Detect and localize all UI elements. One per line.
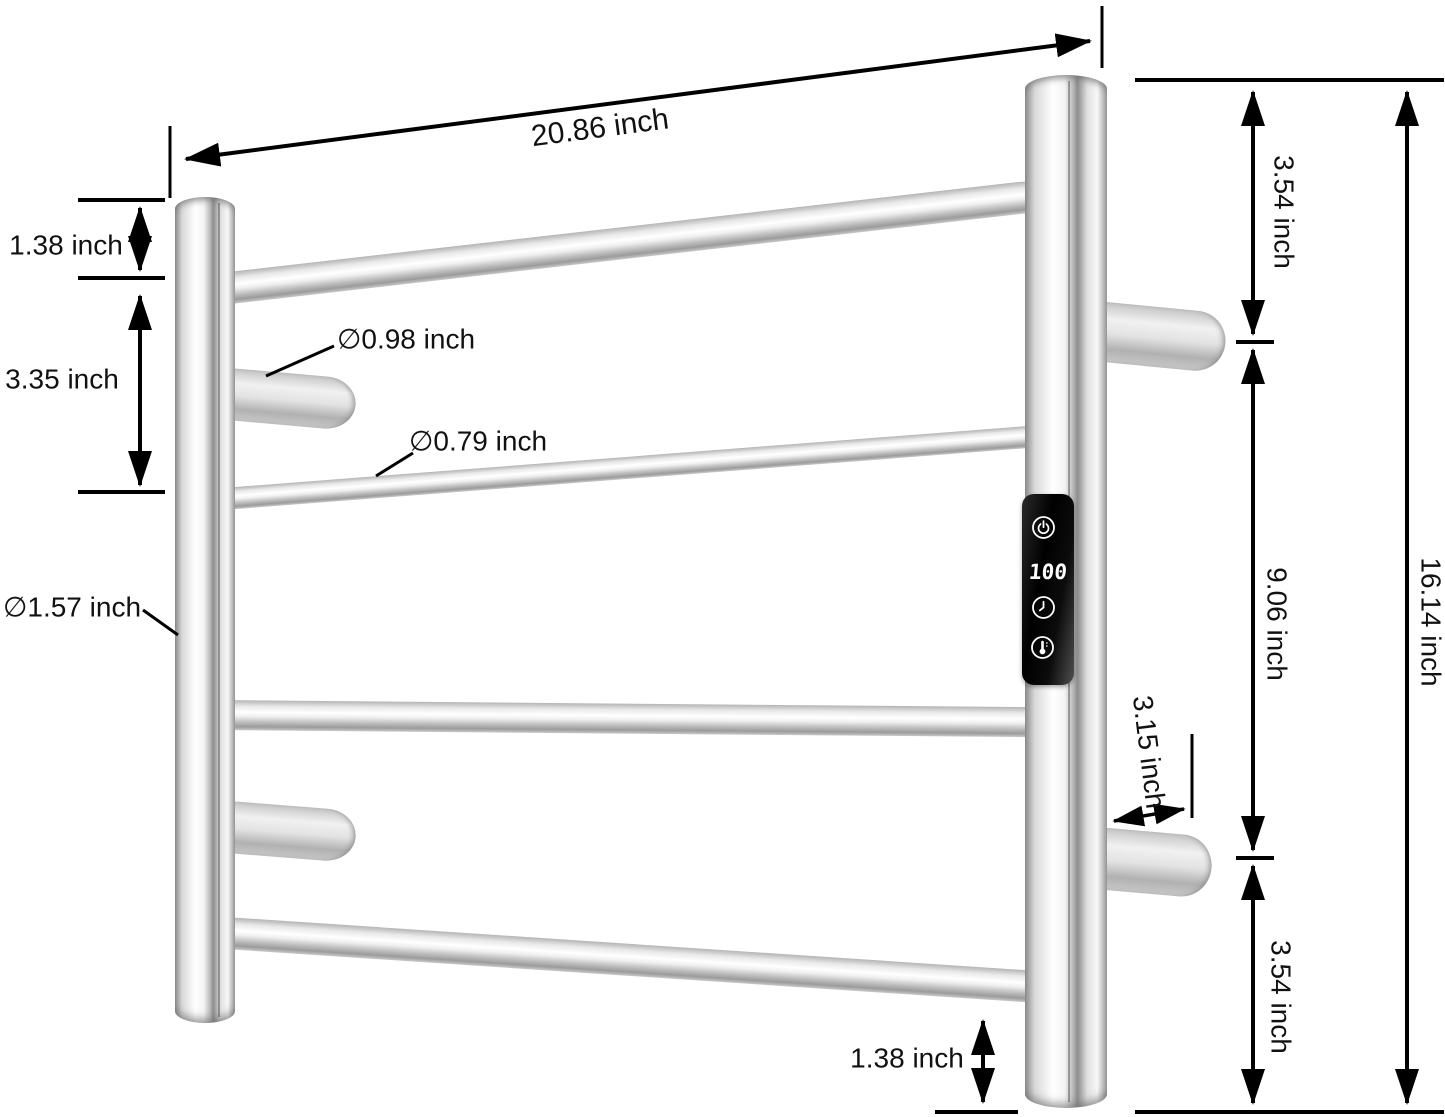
dim-label-left-spacing: 3.35 inch <box>5 364 119 393</box>
power-icon <box>1030 514 1057 541</box>
leader-bar-diameter <box>376 453 413 476</box>
dim-label-left-offset: 1.38 inch <box>9 230 123 259</box>
towel-bar-top <box>210 180 1040 306</box>
towel-bar-third <box>210 700 1042 737</box>
towel-bar-bottom <box>209 916 1041 1003</box>
leader-rail-diameter <box>143 610 178 635</box>
mount-peg-left-lower <box>226 801 358 863</box>
dim-label-right-middle: 9.06 inch <box>1262 567 1291 681</box>
dim-line-bracket <box>1114 809 1184 821</box>
dim-label-top-width: 20.86 inch <box>529 103 670 152</box>
left-rail-seam <box>218 203 220 1017</box>
dim-label-rail-diameter: ∅1.57 inch <box>3 592 141 621</box>
dim-line-top-width <box>186 41 1090 159</box>
temperature-icon <box>1029 634 1056 661</box>
timer-icon <box>1030 594 1057 621</box>
left-rail <box>175 197 235 1023</box>
towel-warmer-dimension-diagram: 100 <box>0 0 1445 1117</box>
dim-label-right-bottom: 3.54 inch <box>1266 940 1295 1054</box>
dim-label-bar-diameter: ∅0.79 inch <box>409 426 547 455</box>
dim-label-bracket-depth: 3.15 inch <box>1127 694 1170 810</box>
mount-peg-left-upper <box>226 368 358 431</box>
led-display: 100 <box>1021 560 1075 584</box>
towel-bar-second <box>209 425 1040 511</box>
dim-label-bottom-offset: 1.38 inch <box>850 1043 964 1072</box>
control-panel: 100 <box>1022 494 1074 685</box>
dim-label-peg-diameter: ∅0.98 inch <box>337 324 475 353</box>
dim-label-right-top: 3.54 inch <box>1269 155 1298 269</box>
dim-label-overall-height: 16.14 inch <box>1416 557 1445 686</box>
